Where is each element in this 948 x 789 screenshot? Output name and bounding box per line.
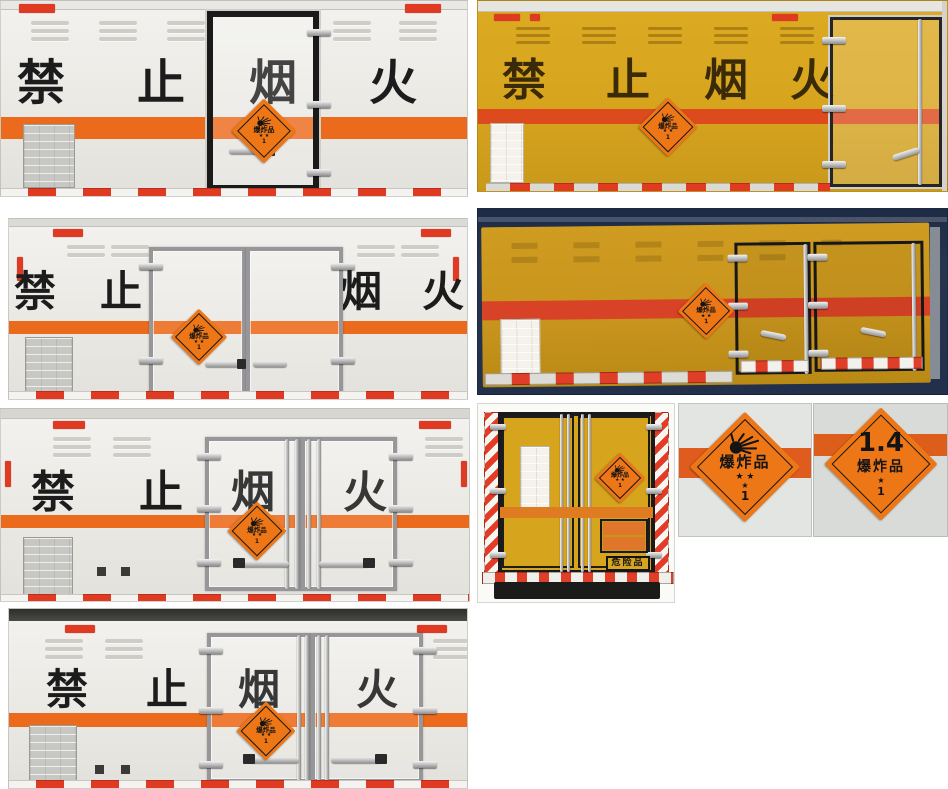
hinge: [307, 101, 331, 108]
truck-body: 爆炸品 ★ ★ 1: [481, 223, 931, 388]
hinge: [490, 552, 506, 558]
data-plate: [29, 725, 77, 781]
door-handle: [331, 757, 381, 763]
vent-louvers: [357, 245, 395, 257]
vent-louvers: [582, 27, 616, 44]
vent-louvers: [714, 27, 748, 44]
hinge: [389, 453, 413, 460]
roof-edge: [9, 219, 467, 227]
reflective-strip: [485, 371, 733, 386]
reflector: [419, 421, 451, 429]
door-latch: [363, 558, 375, 568]
slogan-char: 禁: [14, 271, 56, 313]
reflective-strip: [486, 183, 830, 192]
slogan-char: 止: [100, 271, 142, 313]
lock-rod: [307, 439, 311, 589]
placard-class: 1: [741, 490, 749, 503]
hinge: [727, 255, 747, 262]
photo-white-truck-3: 禁 止 烟 火 爆炸品 ★ ★ 1: [0, 408, 470, 602]
vent-louvers: [648, 27, 682, 44]
placard-class: 1: [704, 318, 708, 324]
roof-edge: [1, 409, 469, 419]
reflector: [65, 625, 95, 633]
reflective-strip: [1, 594, 469, 602]
hinge: [331, 357, 355, 364]
hinge: [413, 647, 437, 654]
lock-rod: [560, 414, 563, 572]
hinge: [389, 505, 413, 512]
data-plate: [23, 537, 73, 595]
reflective-strip: [9, 391, 467, 400]
photo-collage: 禁 止 烟 火 爆炸品 ★ ★ 1: [0, 0, 948, 789]
vent-louvers: [53, 437, 91, 457]
danger-goods-plate: 危险品: [606, 556, 650, 571]
reflector: [421, 229, 451, 237]
reflector: [772, 14, 798, 21]
reflector: [417, 625, 447, 633]
door-handle: [253, 361, 287, 367]
hinge: [822, 105, 846, 112]
hinge: [490, 488, 506, 494]
hinge: [413, 761, 437, 768]
vent-louvers: [167, 21, 205, 41]
hinge: [808, 350, 828, 357]
reflective-strip: [741, 360, 809, 373]
hinge: [139, 263, 163, 270]
hinge: [822, 37, 846, 44]
photo-yellow-truck-2: 爆炸品 ★ ★ 1: [477, 208, 948, 395]
lock-rod: [588, 414, 591, 572]
photo-placard-closeup: 爆炸品 ★ ★ ★ 1: [678, 403, 812, 537]
slogan-char: 禁: [31, 471, 75, 515]
reflective-strip: [821, 357, 923, 370]
vent-louvers: [67, 245, 105, 257]
reflective-strip: [9, 780, 467, 789]
body-fitting: [95, 765, 104, 774]
slogan-char: 止: [139, 471, 183, 515]
explosive-placard: 爆炸品 ★ ★ 1: [241, 108, 287, 154]
background-streak: [478, 217, 947, 222]
slogan-char: 止: [137, 59, 185, 107]
hinge: [307, 169, 331, 176]
side-reflector: [5, 461, 11, 487]
lock-rod: [305, 635, 309, 781]
placard-class: 1: [262, 140, 266, 146]
explosion-icon: [190, 323, 207, 332]
reflector: [53, 421, 85, 429]
slogan-char: 烟: [704, 59, 748, 103]
placard-class: 1: [264, 739, 268, 745]
vent-louvers: [425, 437, 463, 457]
reflector: [53, 229, 83, 237]
hinge: [413, 707, 437, 714]
photo-white-truck-1: 禁 止 烟 火 爆炸品 ★ ★ 1: [0, 0, 468, 197]
rear-door-right: [246, 247, 343, 397]
vent-louvers: [516, 27, 550, 44]
slogan-char: 禁: [502, 59, 546, 103]
side-reflector: [461, 461, 467, 487]
body-side-rail: [930, 227, 940, 379]
background-band: [9, 609, 467, 621]
blank-orange-panel: [603, 522, 645, 535]
rear-door-right: [813, 241, 924, 372]
explosive-placard: 爆炸品 ★ ★ 1: [236, 510, 278, 552]
hinge: [199, 707, 223, 714]
hinge: [199, 647, 223, 654]
placard-label: 爆炸品: [189, 332, 209, 339]
reflector: [494, 14, 520, 21]
vent-louvers: [113, 437, 151, 457]
orange-stripe: [500, 507, 653, 518]
hinge: [199, 761, 223, 768]
photo-white-truck-2: 禁 止 烟 火 爆炸品 ★ ★ 1: [8, 218, 468, 400]
explosive-placard: 爆炸品 ★ ★ 1: [245, 710, 287, 752]
hinge: [808, 302, 828, 309]
blank-orange-panel: [603, 537, 645, 550]
slogan-char: 止: [146, 669, 188, 711]
placard-label: 爆炸品: [857, 460, 905, 475]
lock-rod: [581, 414, 584, 572]
door-latch: [237, 359, 246, 369]
hinge: [728, 351, 748, 358]
placard-class: 1: [255, 539, 259, 545]
photo-yellow-truck-rear: 危险品 爆炸品 ★ ★ 1: [477, 403, 675, 603]
explosive-placard: 爆炸品 ★ ★ 1: [179, 317, 219, 357]
lock-rod: [325, 635, 329, 781]
roof-edge: [1, 1, 467, 10]
lock-rod: [567, 414, 570, 572]
photo-placard-14-closeup: 1.4 爆炸品 ★ 1: [813, 403, 948, 537]
hinge: [822, 161, 846, 168]
reflector: [530, 14, 540, 21]
placard-label: 爆炸品: [719, 454, 770, 470]
hinge: [389, 559, 413, 566]
hinge: [490, 424, 506, 430]
vent-louvers: [433, 639, 468, 659]
vent-louvers: [401, 245, 439, 257]
hinge: [197, 453, 221, 460]
explosion-icon: [724, 431, 766, 454]
rear-door-right: [301, 437, 397, 591]
placard-class: 1: [666, 135, 670, 141]
explosive-placard: 爆炸品 ★ ★ 1: [686, 291, 726, 331]
data-plate: [490, 123, 524, 183]
data-plate: [23, 124, 75, 188]
door-latch: [375, 754, 387, 764]
slogan-char: 烟: [340, 271, 382, 313]
placard-class: 1: [618, 485, 622, 491]
photo-white-truck-4: 禁 止 烟 火 爆炸品 ★ ★ 1: [8, 608, 468, 789]
vent-louvers: [111, 245, 149, 257]
hinge: [807, 254, 827, 261]
placard-division-code: 1.4: [858, 431, 904, 458]
vent-louvers: [31, 21, 69, 41]
slogan-char: 禁: [17, 59, 65, 107]
hinge: [331, 263, 355, 270]
vent-louvers: [399, 21, 437, 41]
data-plate: [500, 319, 541, 379]
hinge: [646, 488, 662, 494]
reflector: [405, 4, 441, 13]
vent-louvers: [333, 21, 371, 41]
vent-louvers: [45, 639, 83, 659]
explosion-icon: [697, 297, 714, 306]
body-fitting: [97, 567, 106, 576]
data-plate: [25, 337, 73, 393]
hinge: [307, 29, 331, 36]
slogan-char: 禁: [46, 669, 88, 711]
explosive-placard: 爆炸品 ★ ★ 1: [647, 106, 689, 148]
door-handle: [319, 561, 369, 567]
hinge: [197, 559, 221, 566]
body-fitting: [121, 765, 130, 774]
lock-rod: [918, 19, 922, 185]
explosive-placard-large: 爆炸品 ★ ★ ★ 1: [706, 428, 784, 506]
body-fitting: [121, 567, 130, 576]
reflector: [19, 4, 55, 13]
placard-class: 1: [877, 486, 885, 498]
lock-rod: [295, 439, 299, 589]
slogan-char: 火: [422, 271, 464, 313]
roof-edge: [478, 1, 947, 12]
hinge: [197, 505, 221, 512]
reflective-strip: [1, 188, 467, 197]
explosive-placard: 爆炸品 ★ ★ 1: [602, 460, 638, 496]
vent-louvers: [780, 27, 814, 44]
lock-rod: [317, 635, 321, 781]
slogan-char: 火: [369, 59, 417, 107]
placard-holder: [600, 519, 648, 553]
rear-bumper: [494, 582, 660, 599]
door-handle: [239, 561, 289, 567]
placard-class: 1: [197, 344, 201, 350]
rear-door: [830, 17, 942, 187]
slogan-char: 火: [790, 59, 834, 103]
hinge: [646, 424, 662, 430]
explosive-placard-1-4: 1.4 爆炸品 ★ 1: [841, 424, 921, 504]
vent-louvers: [99, 21, 137, 41]
certificate-sheet: [520, 446, 550, 508]
photo-yellow-truck-1: 禁 止 烟 火 爆炸品 ★ ★ 1: [477, 0, 948, 192]
hinge: [139, 357, 163, 364]
vent-louvers: [105, 639, 143, 659]
body-side-rail: [942, 1, 948, 192]
